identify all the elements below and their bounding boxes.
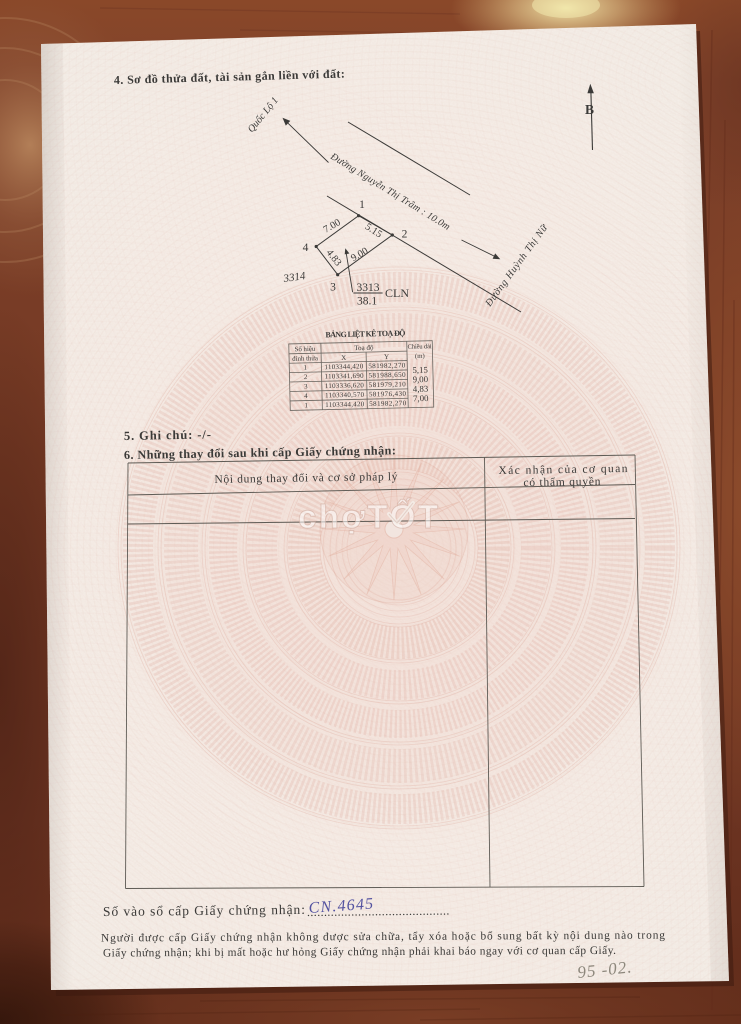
svg-text:Toạ độ: Toạ độ <box>354 344 374 352</box>
svg-text:2: 2 <box>402 229 408 241</box>
svg-text:581982,270: 581982,270 <box>369 399 407 408</box>
svg-text:1103344,420: 1103344,420 <box>324 362 364 371</box>
svg-text:4: 4 <box>303 242 309 254</box>
svg-text:BẢNG LIỆT KÊ TOẠ ĐỘ: BẢNG LIỆT KÊ TOẠ ĐỘ <box>325 328 405 340</box>
svg-text:có thẩm quyền: có thẩm quyền <box>523 475 600 489</box>
svg-text:Chiều dài: Chiều dài <box>408 343 432 351</box>
svg-text:Số hiệu: Số hiệu <box>295 346 316 353</box>
svg-text:1103341,690: 1103341,690 <box>325 372 365 381</box>
svg-text:1103340,570: 1103340,570 <box>325 391 365 400</box>
svg-text:đỉnh thửa: đỉnh thửa <box>292 355 318 363</box>
svg-text:chợTỐT: chợTỐT <box>298 497 438 535</box>
svg-text:Y: Y <box>384 353 389 361</box>
svg-text:581976,430: 581976,430 <box>369 390 407 399</box>
svg-text:581979,210: 581979,210 <box>369 380 407 389</box>
svg-text:581988,650: 581988,650 <box>368 371 406 380</box>
svg-text:1103344,420: 1103344,420 <box>325 400 365 409</box>
svg-text:3: 3 <box>330 282 336 294</box>
svg-text:Số vào sổ cấp Giấy chứng nhận:: Số vào sổ cấp Giấy chứng nhận: <box>103 902 305 919</box>
svg-text:581982,270: 581982,270 <box>368 361 406 370</box>
svg-text:7,00: 7,00 <box>413 393 429 403</box>
svg-text:X: X <box>341 354 346 362</box>
svg-text:1103336,620: 1103336,620 <box>325 381 365 390</box>
svg-text:3313: 3313 <box>357 282 380 294</box>
svg-text:5. Ghi chú: -/-: 5. Ghi chú: -/- <box>124 427 211 443</box>
svg-text:(m): (m) <box>415 353 425 360</box>
svg-text:1: 1 <box>359 199 365 211</box>
svg-text:B: B <box>585 102 594 117</box>
svg-text:38.1: 38.1 <box>357 296 377 308</box>
svg-text:CLN: CLN <box>385 286 409 300</box>
